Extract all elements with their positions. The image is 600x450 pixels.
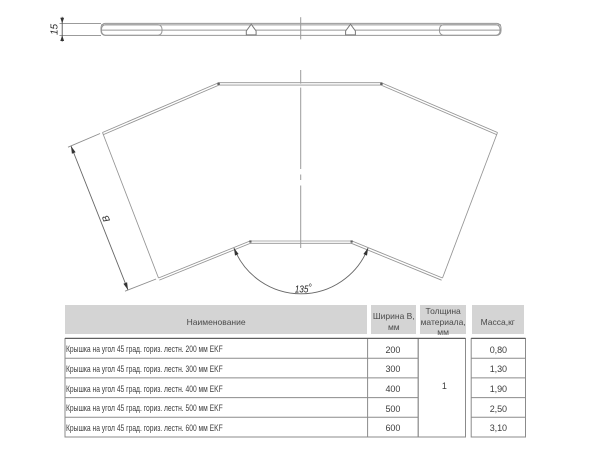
svg-text:B: B: [100, 213, 113, 224]
svg-text:135°: 135°: [295, 282, 312, 295]
svg-text:15: 15: [50, 23, 61, 35]
